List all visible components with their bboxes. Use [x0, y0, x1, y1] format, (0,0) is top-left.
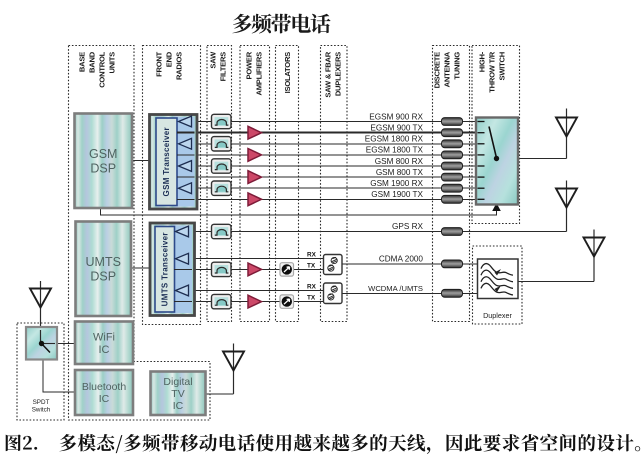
svg-text:GSM 800 RX: GSM 800 RX: [375, 157, 424, 166]
svg-text:SAW & FBARDUPLEXERS: SAW & FBARDUPLEXERS: [323, 51, 342, 97]
svg-text:TX: TX: [307, 295, 316, 302]
svg-text:UMTS: UMTS: [86, 255, 121, 269]
svg-text:RX: RX: [307, 283, 317, 290]
svg-text:SPDT: SPDT: [33, 399, 50, 406]
svg-text:IC: IC: [99, 344, 110, 356]
svg-text:GSM 1900 TX: GSM 1900 TX: [371, 190, 423, 199]
svg-text:Digital: Digital: [163, 376, 192, 388]
svg-text:DSP: DSP: [90, 269, 116, 283]
svg-text:WCDMA /UMTS: WCDMA /UMTS: [368, 284, 423, 293]
svg-text:EGSM 1800 RX: EGSM 1800 RX: [365, 135, 424, 144]
svg-text:Switch: Switch: [32, 407, 51, 414]
svg-text:GSM 800 TX: GSM 800 TX: [376, 168, 424, 177]
svg-text:GSM: GSM: [89, 147, 117, 161]
svg-text:WiFi: WiFi: [93, 331, 115, 343]
svg-text:IC: IC: [99, 393, 110, 405]
svg-text:EGSM 1800 TX: EGSM 1800 TX: [366, 146, 424, 155]
svg-text:GPS RX: GPS RX: [392, 222, 423, 231]
svg-text:EGSM 900 TX: EGSM 900 TX: [370, 124, 423, 133]
svg-text:DSP: DSP: [90, 161, 116, 175]
svg-text:GSM 1900 RX: GSM 1900 RX: [370, 179, 423, 188]
svg-text:TV: TV: [171, 388, 184, 400]
svg-text:ISOLATORS: ISOLATORS: [283, 52, 292, 94]
svg-text:CDMA 2000: CDMA 2000: [379, 254, 424, 263]
svg-text:Bluetooth: Bluetooth: [82, 381, 127, 393]
svg-text:EGSM 900 RX: EGSM 900 RX: [369, 112, 423, 121]
svg-text:TX: TX: [307, 262, 316, 269]
svg-text:Duplexer: Duplexer: [483, 311, 512, 320]
svg-text:GSM Transceiver: GSM Transceiver: [162, 127, 171, 196]
svg-text:IC: IC: [173, 400, 184, 412]
svg-text:UMTS Transceiver: UMTS Transceiver: [160, 232, 169, 306]
svg-text:RX: RX: [307, 252, 317, 259]
